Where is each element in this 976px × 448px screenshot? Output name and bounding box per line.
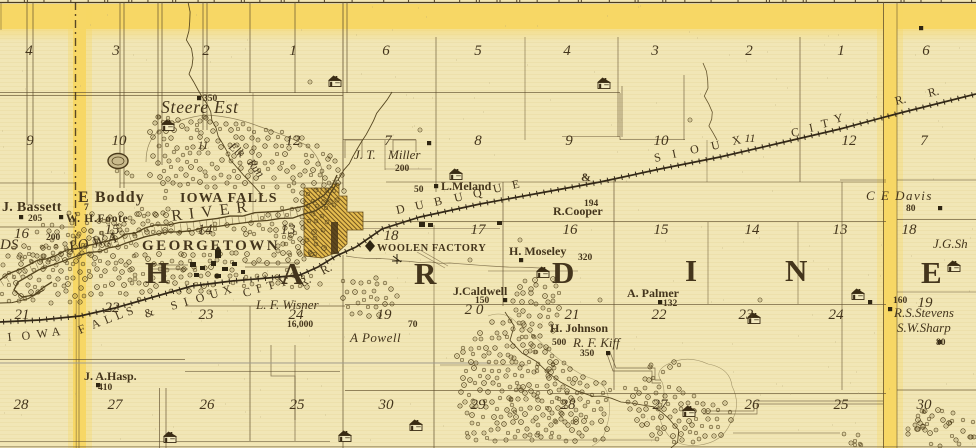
svg-text:1: 1 — [837, 43, 845, 59]
svg-text:80: 80 — [906, 204, 916, 214]
svg-text:28: 28 — [14, 397, 30, 413]
svg-text:13: 13 — [281, 222, 296, 238]
svg-text:19: 19 — [377, 307, 393, 323]
svg-text:350: 350 — [580, 349, 595, 359]
svg-text:16,000: 16,000 — [287, 320, 313, 330]
svg-text:A. Palmer: A. Palmer — [627, 286, 680, 300]
svg-text:50: 50 — [414, 185, 424, 195]
svg-text:D: D — [552, 255, 574, 290]
svg-text:9: 9 — [26, 133, 34, 149]
svg-text:2: 2 — [745, 43, 753, 59]
svg-text:5: 5 — [474, 43, 482, 59]
svg-text:26: 26 — [745, 397, 761, 413]
svg-text:13: 13 — [833, 222, 848, 238]
svg-text:70: 70 — [408, 320, 418, 330]
svg-text:R.S.Stevens: R.S.Stevens — [893, 305, 954, 320]
svg-text:16: 16 — [563, 222, 579, 238]
svg-text:O: O — [21, 328, 31, 343]
svg-text:21: 21 — [15, 307, 30, 323]
svg-text:25: 25 — [290, 397, 306, 413]
svg-text:J.G.Sh: J.G.Sh — [933, 236, 968, 251]
svg-text:30: 30 — [916, 397, 933, 413]
svg-text:10: 10 — [654, 133, 670, 149]
svg-text:3: 3 — [650, 43, 659, 59]
svg-text:R. F. Kiff: R. F. Kiff — [572, 335, 622, 350]
svg-text:W: W — [36, 326, 49, 341]
svg-text:E: E — [921, 255, 942, 290]
svg-text:J. A.Hasp.: J. A.Hasp. — [84, 369, 137, 383]
svg-text:L.Meland: L.Meland — [441, 179, 492, 193]
svg-text:WOOLEN FACTORY: WOOLEN FACTORY — [377, 243, 486, 254]
svg-text:J. Bassett: J. Bassett — [2, 200, 62, 215]
svg-text:25: 25 — [834, 397, 850, 413]
svg-text:DS: DS — [0, 237, 19, 253]
svg-text:22: 22 — [652, 307, 668, 323]
svg-text:3: 3 — [111, 43, 120, 59]
svg-text:6: 6 — [922, 43, 930, 59]
svg-text:Miller: Miller — [387, 147, 421, 162]
svg-text:9: 9 — [565, 133, 573, 149]
svg-text:W. H.Foote: W. H.Foote — [66, 213, 128, 225]
svg-text:GEORGETOWN: GEORGETOWN — [142, 238, 280, 254]
svg-text:C E Davis: C E Davis — [866, 188, 933, 203]
svg-text:8: 8 — [474, 133, 482, 149]
svg-text:23: 23 — [739, 307, 754, 323]
svg-text:15: 15 — [654, 222, 670, 238]
svg-text:194: 194 — [584, 199, 599, 209]
svg-text:200: 200 — [395, 164, 410, 174]
svg-text:410: 410 — [98, 383, 113, 393]
svg-text:11: 11 — [744, 131, 755, 145]
svg-text:7: 7 — [84, 203, 89, 213]
svg-text:26: 26 — [200, 397, 216, 413]
svg-text:27: 27 — [108, 397, 125, 413]
svg-text:4: 4 — [25, 43, 33, 59]
svg-text:R: R — [414, 256, 437, 291]
svg-text:L. F. Wisner: L. F. Wisner — [255, 297, 320, 312]
svg-text:S.W.Sharp: S.W.Sharp — [897, 320, 951, 335]
svg-text:4: 4 — [563, 43, 571, 59]
svg-text:10: 10 — [112, 133, 128, 149]
svg-text:18: 18 — [902, 222, 918, 238]
svg-text:24: 24 — [829, 307, 845, 323]
svg-text:30: 30 — [378, 397, 395, 413]
svg-text:1: 1 — [289, 43, 297, 59]
svg-text:28: 28 — [561, 397, 577, 413]
svg-text:H. Johnson: H. Johnson — [550, 321, 608, 335]
svg-text:J. T.: J. T. — [354, 147, 376, 162]
svg-text:500: 500 — [552, 338, 567, 348]
svg-text:A Powell: A Powell — [349, 330, 401, 345]
svg-text:I: I — [685, 253, 697, 288]
svg-text:17: 17 — [471, 222, 488, 238]
svg-text:A: A — [51, 324, 61, 339]
svg-text:18: 18 — [384, 228, 400, 244]
svg-text:14: 14 — [198, 222, 214, 238]
svg-text:2: 2 — [202, 43, 210, 59]
svg-text:Steere Est: Steere Est — [161, 97, 239, 117]
svg-text:14: 14 — [745, 222, 761, 238]
svg-text:132: 132 — [663, 299, 678, 309]
svg-text:23: 23 — [199, 307, 214, 323]
svg-text:12: 12 — [842, 133, 858, 149]
svg-text:11: 11 — [197, 138, 208, 152]
svg-text:205: 205 — [28, 214, 43, 224]
svg-text:&: & — [581, 170, 591, 184]
svg-text:320: 320 — [578, 253, 593, 263]
svg-text:H: H — [145, 255, 169, 290]
svg-text:N: N — [785, 253, 807, 288]
svg-text:150: 150 — [475, 296, 490, 306]
svg-text:80: 80 — [936, 338, 946, 348]
svg-text:350: 350 — [203, 94, 218, 104]
svg-text:12: 12 — [286, 133, 302, 149]
svg-text:200: 200 — [46, 233, 61, 243]
svg-text:29: 29 — [471, 397, 487, 413]
svg-text:6: 6 — [382, 43, 390, 59]
svg-text:27: 27 — [653, 397, 670, 413]
